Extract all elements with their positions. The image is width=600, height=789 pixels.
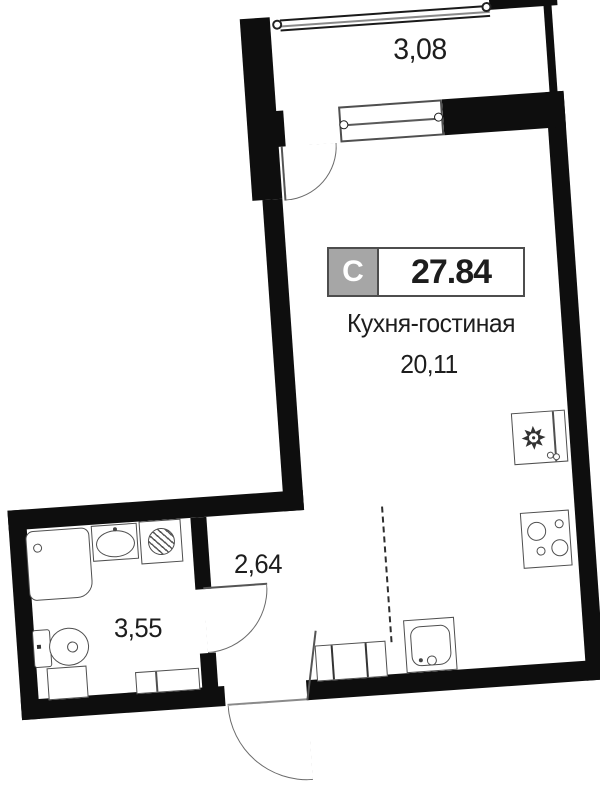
wardrobe-icon: [315, 641, 388, 682]
wall-bathroom-right-upper: [190, 517, 211, 590]
washbasin-bowl: [95, 529, 136, 559]
wall-balcony-right: [543, 4, 557, 94]
balcony-window: [280, 5, 490, 32]
wardrobe-divider-1: [331, 645, 335, 679]
window-glass-line: [280, 11, 490, 27]
wall-balcony-left: [240, 17, 283, 201]
cabinet-icon: [47, 666, 89, 701]
burner-small-2: [536, 546, 546, 556]
shower-drain: [33, 543, 43, 553]
window-unit-mid-line: [341, 117, 441, 126]
burner-large-2: [551, 539, 569, 557]
window-endcap-right: [481, 2, 492, 13]
room-balcony-window-unit: [338, 99, 444, 142]
shower-tray-icon: [25, 527, 94, 601]
burner-small-1: [554, 519, 564, 529]
burner-large-1: [527, 521, 547, 541]
snowflake-icon: [519, 423, 549, 453]
wall-bathroom-right-lower: [200, 653, 218, 690]
window-unit-cap-left: [339, 120, 349, 130]
toilet-flush-button: [37, 645, 41, 649]
wall-room-left: [262, 199, 304, 512]
window-unit-cap-right: [434, 112, 444, 122]
wall-balcony-door-jamb: [274, 110, 285, 147]
zone-dashed-line: [381, 506, 392, 642]
entrance-door-swing-arc: [228, 700, 313, 785]
plan-rotated-layer: [0, 0, 600, 789]
wall-room-right: [546, 91, 600, 681]
balcony-door-swing-arc: [283, 143, 341, 201]
stove-icon: [520, 510, 573, 569]
kitchen-sink-icon: [403, 617, 458, 673]
wardrobe-divider-2: [365, 643, 369, 677]
cabinet-divider: [155, 672, 158, 692]
floor-plan: 3,08 С 27.84 Кухня-гостиная 20,11 2,64 3…: [0, 0, 600, 789]
refrigerator-icon: [511, 410, 568, 466]
cabinet-wide-icon: [135, 668, 200, 694]
refrigerator-hinge-mark2: [553, 453, 560, 460]
washbasin-icon: [91, 523, 139, 562]
washing-machine-drum: [147, 527, 176, 556]
washing-machine-icon: [139, 519, 184, 565]
bathroom-door-swing-arc: [203, 585, 271, 653]
